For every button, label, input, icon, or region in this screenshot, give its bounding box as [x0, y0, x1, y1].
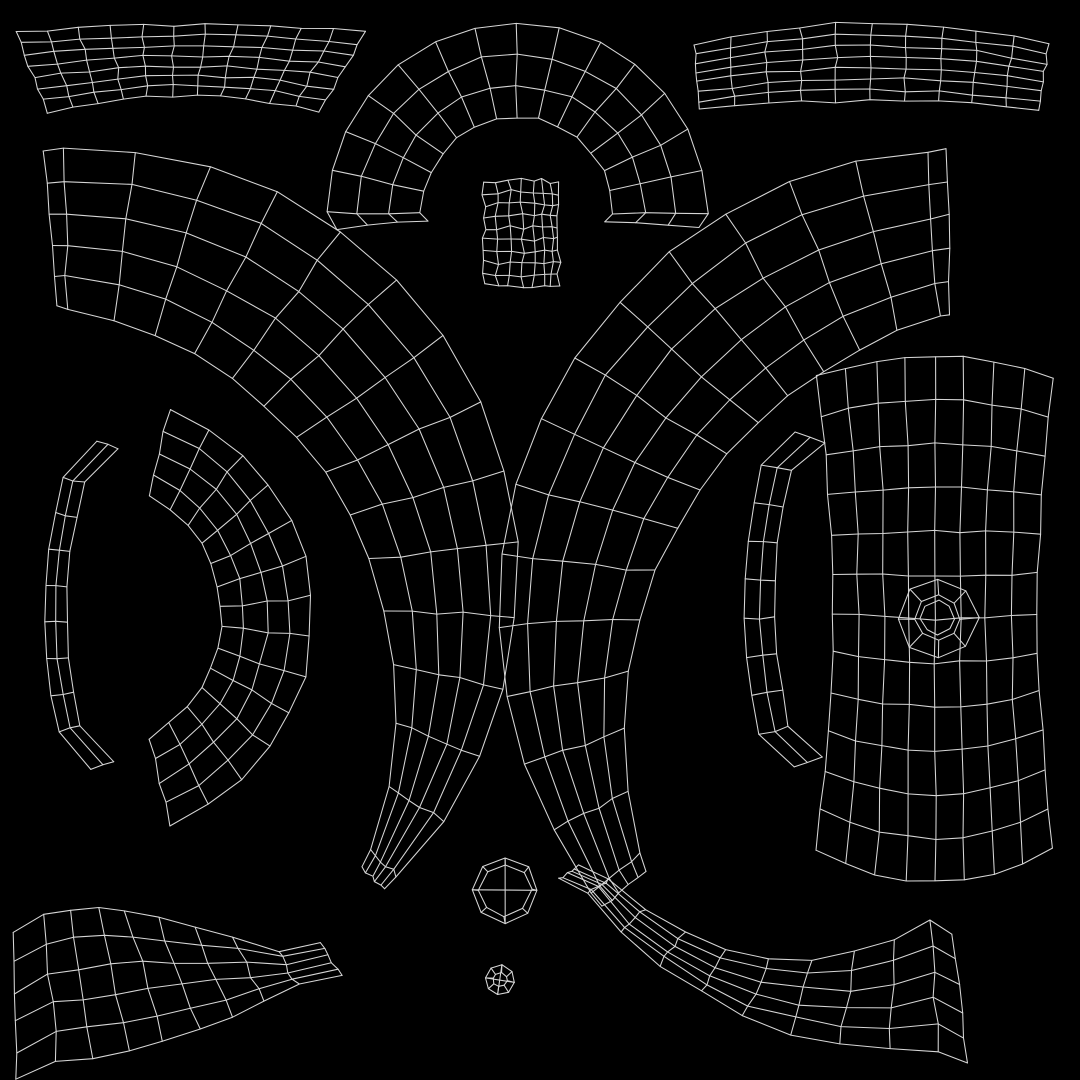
- octagon-cap: [472, 858, 537, 924]
- top-right-band: [694, 22, 1049, 110]
- uv-wireframe-canvas: [0, 0, 1080, 1080]
- top-arch-half-ring: [327, 23, 708, 229]
- bottom-left-band: [13, 908, 342, 1080]
- medium-c-ring: [149, 410, 310, 826]
- tiny-circle-cap: [486, 965, 515, 995]
- large-left-c-ring: [43, 148, 518, 889]
- large-right-c-ring: [499, 149, 950, 906]
- right-panel-grid: [816, 356, 1053, 881]
- right-thin-strip: [744, 432, 825, 767]
- bottom-right-band: [559, 865, 968, 1063]
- left-thin-strip: [45, 441, 118, 769]
- uv-layout-stage: UV wireframe layout: [0, 0, 1080, 1080]
- top-left-band: [16, 24, 365, 114]
- small-square-patch: [482, 178, 561, 287]
